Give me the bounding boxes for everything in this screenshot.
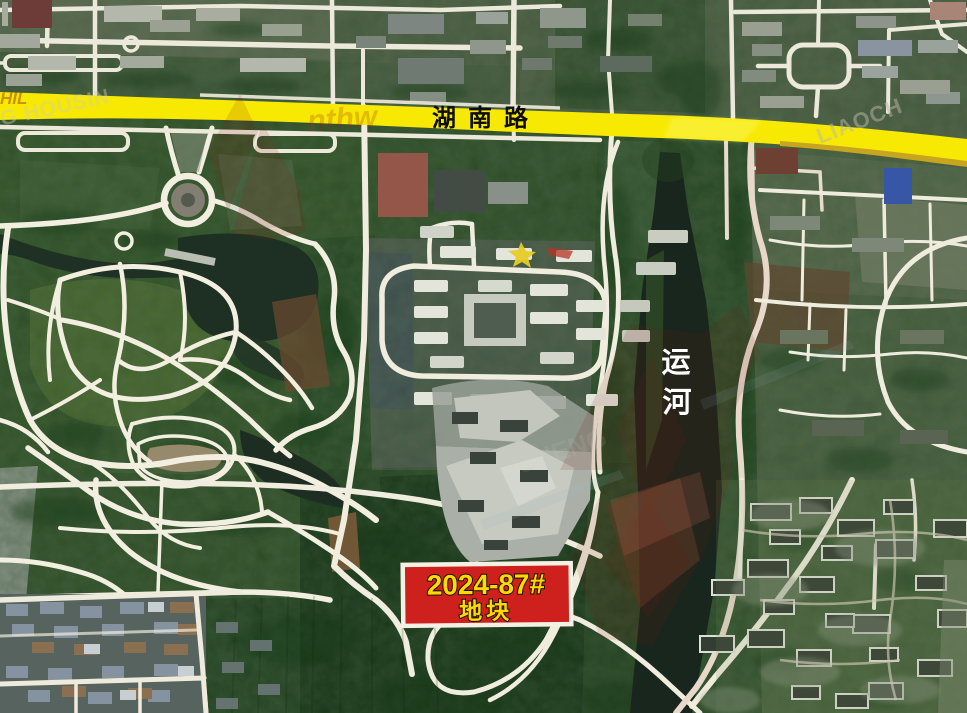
svg-text:地块: 地块 <box>459 598 513 625</box>
svg-text:nthw: nthw <box>306 100 380 138</box>
svg-text:运: 运 <box>661 347 690 379</box>
svg-text:HIL: HIL <box>0 89 27 108</box>
svg-text:湖南路: 湖南路 <box>432 104 540 132</box>
svg-text:河: 河 <box>662 386 691 419</box>
svg-text:2024-87#: 2024-87# <box>427 568 546 600</box>
